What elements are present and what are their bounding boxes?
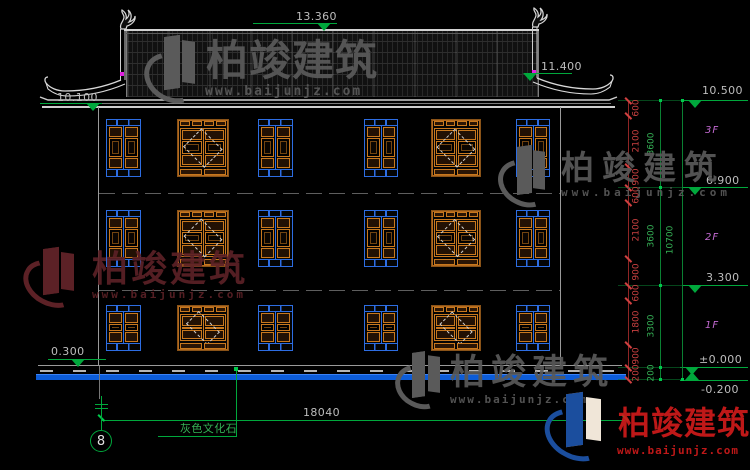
elevation-label: 3.300: [706, 272, 740, 283]
dimension-dot: [659, 284, 662, 287]
axis-extension-line: [99, 366, 100, 399]
window-double-leaf: [106, 119, 141, 177]
window-bottom-band: [365, 343, 397, 350]
watermark-site-text: www.baijunjz.com: [92, 289, 246, 300]
window-body: [108, 126, 139, 169]
material-leader-dot: [234, 367, 238, 371]
material-note-text: 灰色文化石: [180, 423, 237, 434]
cad-elevation-drawing: 18040 8 灰色文化石 13.36010.10011.40010.5006.…: [0, 0, 750, 470]
elevation-label: 10.500: [702, 85, 743, 96]
elevation-label: 13.360: [296, 11, 337, 22]
elevation-marker-line: [680, 380, 748, 381]
window-double-leaf: [258, 119, 293, 177]
watermark-logo: [24, 248, 80, 306]
dimension-dot: [659, 366, 662, 369]
logo-building-small: [61, 252, 74, 291]
dimension-dot: [681, 378, 684, 381]
window-body: [366, 126, 396, 169]
window-bottom-panes: [432, 342, 480, 350]
watermark-site-text: www.baijunjz.com: [205, 85, 362, 98]
logo-building-small: [586, 397, 601, 441]
dimension-value: 900: [633, 347, 642, 364]
window-top-panes: [178, 306, 228, 313]
window-top-panes: [178, 211, 228, 218]
axis-break-tick: [95, 408, 108, 409]
ridge-ornament-left: [121, 10, 136, 29]
elevation-marker-triangle: [688, 100, 702, 108]
elevation-label: -0.200: [701, 384, 739, 395]
window-double-leaf: [106, 305, 141, 351]
dimension-value: 3600: [648, 225, 657, 248]
watermark-logo: [545, 393, 607, 459]
window-body: [260, 126, 291, 169]
floor-line-3f: [99, 193, 560, 194]
logo-building: [412, 351, 425, 398]
logo-building-small: [182, 40, 195, 84]
dimension-dot: [659, 99, 662, 102]
elevation-label: 11.400: [541, 61, 582, 72]
window-lattice: [177, 119, 229, 177]
watermark-site-text: www.baijunjz.com: [617, 445, 739, 456]
window-body: [434, 314, 478, 341]
dimension-chain-line: [660, 100, 661, 379]
watermark-site-text: www.baijunjz.com: [561, 187, 731, 198]
axis-leader-line: [101, 396, 102, 430]
dimension-value: 200: [648, 364, 657, 381]
elevation-marker-line: [534, 73, 572, 74]
elevation-marker-triangle: [685, 372, 699, 380]
material-leader-underline: [158, 436, 237, 437]
watermark-logo: [499, 146, 551, 206]
logo-building: [566, 392, 583, 447]
dimension-value: 900: [633, 263, 642, 280]
window-double-leaf: [516, 305, 550, 351]
axis-number: 8: [97, 434, 105, 449]
dimension-value: 3300: [648, 315, 657, 338]
facade-left-edge: [98, 107, 99, 366]
axis-break-tick: [95, 404, 108, 405]
elevation-marker-triangle: [86, 103, 100, 111]
window-double-leaf: [258, 210, 293, 267]
watermark-brand-text: 柏竣建筑: [206, 40, 378, 82]
dimension-value: 200: [633, 364, 642, 381]
window-lattice: [431, 210, 481, 267]
window-body: [180, 314, 226, 341]
window-body: [434, 219, 478, 257]
window-bottom-panes: [432, 168, 480, 176]
window-bottom-band: [365, 169, 397, 176]
elevation-label: ±0.000: [699, 354, 742, 365]
logo-building-small: [533, 150, 545, 190]
window-body: [518, 217, 548, 259]
window-lattice: [431, 305, 481, 351]
window-lattice: [431, 119, 481, 177]
window-double-leaf: [364, 119, 398, 177]
window-body: [518, 312, 548, 343]
window-double-leaf: [258, 305, 293, 351]
dimension-dot: [681, 99, 684, 102]
window-double-leaf: [364, 305, 398, 351]
window-top-panes: [178, 120, 228, 127]
watermark-brand-text: 柏竣建筑: [561, 151, 725, 184]
watermark-brand-text: 柏竣建筑: [92, 252, 248, 288]
window-bottom-band: [365, 259, 397, 266]
facade-right-edge: [560, 107, 561, 366]
window-bottom-band: [107, 169, 140, 176]
window-bottom-panes: [432, 258, 480, 266]
watermark-logo: [145, 36, 201, 102]
axis-bubble-8: 8: [90, 430, 112, 452]
dimension-value: 10700: [667, 225, 676, 254]
dimension-value: 1800: [633, 311, 642, 334]
dimension-dot: [659, 378, 662, 381]
ridge-ornament-right: [533, 8, 548, 27]
window-body: [434, 128, 478, 167]
watermark-logo: [396, 352, 444, 408]
window-top-panes: [432, 306, 480, 313]
logo-building: [43, 247, 59, 296]
total-width-dimension-text: 18040: [303, 407, 340, 418]
dimension-value: 600: [633, 99, 642, 116]
window-double-leaf: [364, 210, 398, 267]
dimension-value: 600: [633, 284, 642, 301]
floor-label-3f: 3F: [705, 125, 719, 136]
window-body: [366, 217, 396, 259]
window-bottom-band: [259, 259, 292, 266]
window-bottom-band: [259, 343, 292, 350]
window-bottom-panes: [178, 168, 228, 176]
window-bottom-panes: [178, 342, 228, 350]
watermark-brand-text: 柏竣建筑: [618, 407, 750, 439]
window-bottom-band: [517, 259, 549, 266]
dimension-value: 2100: [633, 219, 642, 242]
window-body: [260, 217, 291, 259]
window-bottom-band: [517, 343, 549, 350]
dimension-chain-line: [682, 100, 683, 379]
window-body: [366, 312, 396, 343]
ridge-post-marker-left: [120, 72, 124, 76]
logo-building-small: [428, 356, 440, 393]
window-lattice: [177, 305, 229, 351]
window-top-panes: [432, 211, 480, 218]
logo-building: [164, 35, 180, 90]
floor-label-1f: 1F: [705, 320, 719, 331]
watermark-brand-text: 柏竣建筑: [450, 356, 614, 391]
dimension-chain-line: [628, 100, 629, 379]
window-body: [180, 128, 226, 167]
elevation-marker-triangle: [688, 285, 702, 293]
window-bottom-band: [259, 169, 292, 176]
window-body: [108, 312, 139, 343]
elevation-marker-triangle: [71, 359, 85, 367]
window-bottom-band: [107, 343, 140, 350]
window-top-panes: [432, 120, 480, 127]
window-body: [260, 312, 291, 343]
elevation-label: 10.100: [57, 92, 98, 103]
floor-label-2f: 2F: [705, 232, 719, 243]
logo-building: [517, 145, 532, 195]
elevation-marker-triangle: [523, 73, 537, 81]
elevation-label: 0.300: [51, 346, 85, 357]
window-double-leaf: [516, 210, 550, 267]
elevation-marker-triangle: [317, 23, 331, 31]
